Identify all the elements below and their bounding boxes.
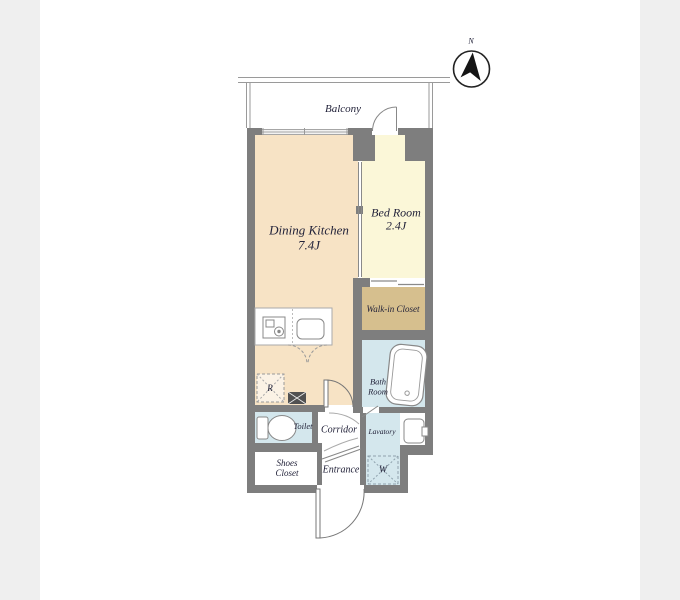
north-label: N bbox=[468, 38, 473, 47]
corridor-label: Corridor bbox=[321, 424, 357, 435]
bath-room-line1: Bath bbox=[370, 376, 386, 386]
bed-room-name: Bed Room bbox=[371, 206, 421, 220]
washing-machine-label: W bbox=[379, 464, 387, 475]
sliding-door-dk-bedroom bbox=[359, 162, 362, 277]
floor-plan-image: N Balcony Dining Kitchen 7.4J Bed Room 2… bbox=[0, 0, 680, 600]
plan-linework bbox=[0, 0, 680, 600]
entrance-door-arc bbox=[316, 489, 364, 538]
walk-in-closet-label: Walk-in Closet bbox=[367, 304, 420, 314]
balcony-label: Balcony bbox=[325, 103, 361, 115]
dining-kitchen-name: Dining Kitchen bbox=[269, 222, 349, 237]
entrance-step-lines bbox=[322, 446, 361, 462]
balcony-door-arc bbox=[373, 107, 397, 131]
shoes-closet-label: Shoes Closet bbox=[275, 458, 298, 478]
bathtub-icon bbox=[385, 343, 428, 407]
counter-dashed-arcs bbox=[288, 345, 327, 364]
toilet-icon bbox=[257, 416, 296, 441]
pipe-shaft bbox=[288, 392, 306, 404]
dk-door-arc bbox=[324, 380, 353, 407]
bath-door-line bbox=[362, 406, 378, 417]
dining-kitchen-label: Dining Kitchen 7.4J bbox=[269, 223, 349, 252]
lavatory-label: Lavatory bbox=[368, 428, 395, 436]
dining-kitchen-size: 7.4J bbox=[298, 237, 320, 252]
entrance-label: Entrance bbox=[323, 464, 360, 475]
refrigerator-label: R bbox=[267, 383, 273, 393]
bed-room-label: Bed Room 2.4J bbox=[371, 207, 421, 234]
wash-basin-icon bbox=[404, 419, 428, 443]
toilet-label: Toilet bbox=[293, 422, 312, 432]
bed-room-size: 2.4J bbox=[386, 219, 406, 233]
sink-icon bbox=[297, 319, 324, 339]
window-glyph-dk bbox=[262, 128, 348, 135]
sliding-door-closet bbox=[371, 281, 424, 285]
bath-room-line2: Room bbox=[368, 386, 388, 396]
bath-room-label: Bath Room bbox=[368, 377, 388, 396]
kitchen-counter bbox=[255, 308, 332, 364]
shoes-closet-line2: Closet bbox=[275, 468, 298, 478]
north-compass-icon bbox=[454, 51, 490, 87]
shoes-closet-line1: Shoes bbox=[276, 458, 297, 468]
